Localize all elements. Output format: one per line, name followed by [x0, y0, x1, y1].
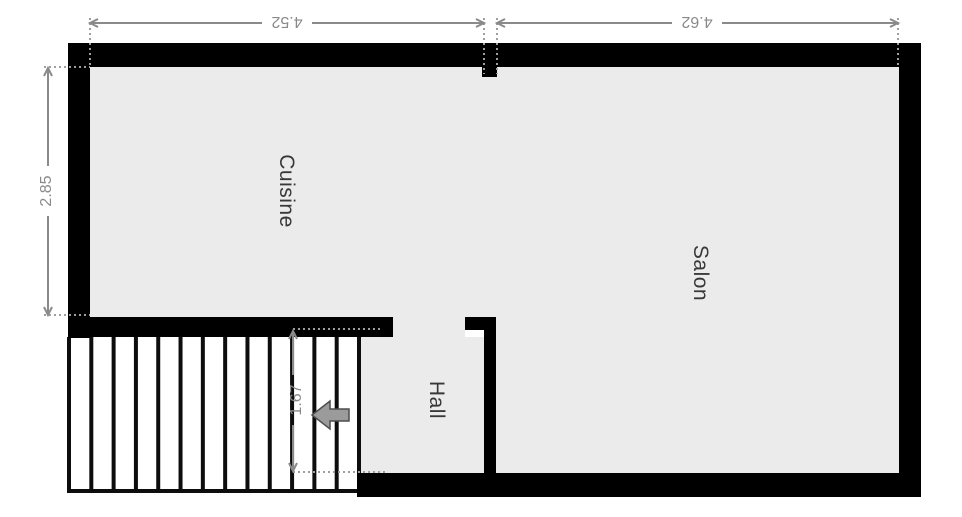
dimension-label-stair-depth: 1.67: [288, 381, 306, 418]
floorplan-canvas: Cuisine Salon Hall 4.52 4.62 2.85 1.67: [0, 0, 962, 517]
wall-hall-salon: [484, 317, 496, 473]
wall-hall-stub: [465, 317, 484, 330]
wall-right: [899, 43, 921, 497]
floor-door-opening[interactable]: [393, 317, 465, 337]
wall-cuisine-stairs: [68, 317, 393, 337]
dimension-label-top-right: 4.62: [678, 12, 715, 30]
wall-bottom: [357, 473, 921, 497]
dimension-label-top-left: 4.52: [268, 12, 305, 30]
floor-cuisine-salon[interactable]: [90, 67, 899, 317]
dimension-label-left-height: 2.85: [38, 172, 56, 209]
floor-salon[interactable]: [496, 317, 899, 473]
room-label-salon[interactable]: Salon: [688, 245, 712, 301]
floorplan-drawing: [0, 0, 962, 517]
room-label-cuisine[interactable]: Cuisine: [274, 154, 298, 228]
room-label-hall[interactable]: Hall: [424, 381, 448, 419]
floor-hall[interactable]: [361, 337, 484, 473]
wall-left: [68, 43, 90, 338]
